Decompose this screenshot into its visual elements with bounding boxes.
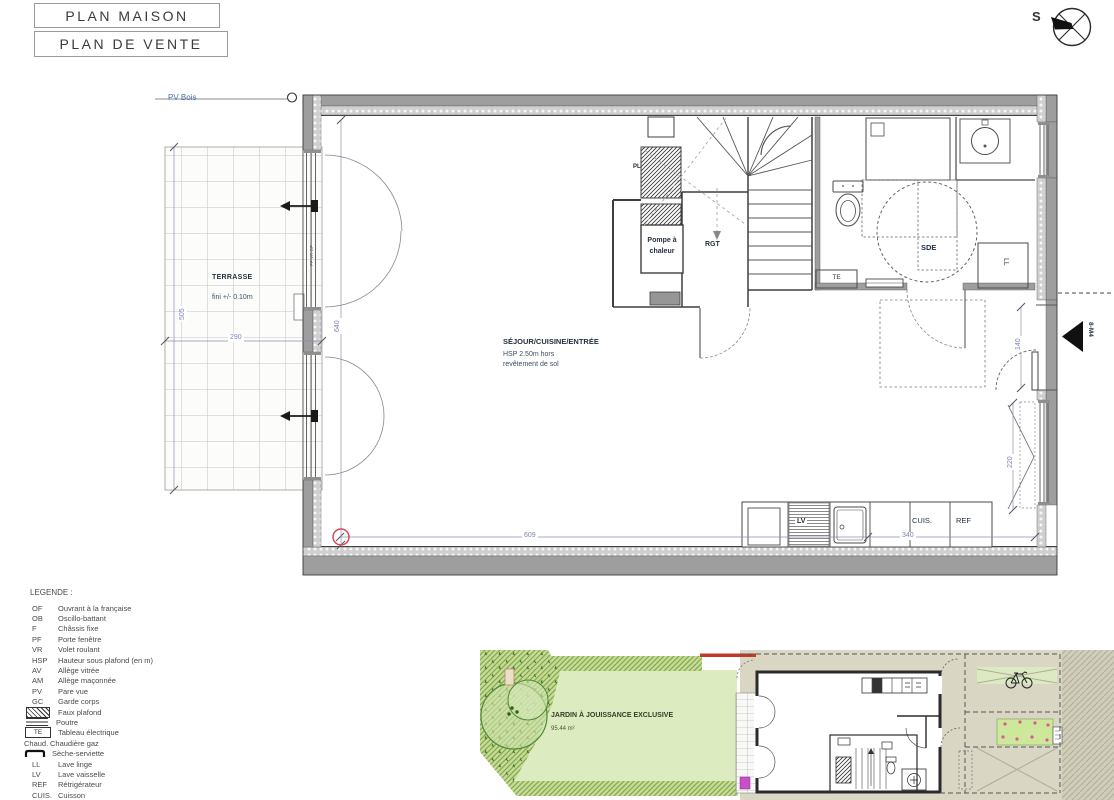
house-footprint (754, 659, 960, 792)
sejour-label: SÉJOUR/CUISINE/ENTRÉE (503, 338, 599, 347)
legend-row-poutre: Poutre (30, 717, 240, 727)
dim-terrasse-height: 505 (179, 306, 187, 322)
compass-icon (1051, 9, 1091, 46)
pompe-label-line1: Pompe à (641, 237, 683, 245)
legend-row: CUIS.Cuisson (30, 790, 240, 800)
title-plan-de-vente: PLAN DE VENTE (34, 31, 228, 57)
tree-icon (508, 680, 548, 720)
legend-row: AMAllège maçonnée (30, 676, 240, 686)
lv-label: LV (795, 518, 807, 526)
plan-sheet: PLAN MAISON PLAN DE VENTE S PV Bois TERR… (0, 0, 1114, 800)
terrasse-label: TERRASSE (212, 274, 253, 282)
legend: LEGENDE : OFOuvrant à la française OBOsc… (30, 588, 240, 800)
te-label: TE (816, 274, 857, 281)
ll-label: LL (1001, 258, 1009, 266)
ref-label: REF (956, 517, 971, 526)
legend-title: LEGENDE : (30, 588, 240, 597)
sde-label: SDE (921, 244, 936, 253)
compass-south-label: S (1032, 10, 1041, 25)
legend-row: LLLave linge (30, 759, 240, 769)
marker-8m4-label: 8-M4 (1087, 322, 1094, 337)
kitchen-counter (742, 502, 992, 547)
dim-right-door: 140 (1015, 336, 1023, 352)
legend-row-seche-serviette: Sèche-serviette (30, 748, 240, 758)
terrasse-tiles (165, 147, 322, 490)
pompe-label-line2: chaleur (641, 248, 683, 256)
magenta-marker (740, 777, 750, 789)
legend-row: AVAllège vitrée (30, 665, 240, 675)
bathroom-sde (815, 117, 1035, 348)
towel-rail-icon (24, 748, 46, 760)
terrasse-note: fini +/- 0.10m (212, 294, 253, 302)
legend-row: FChâssis fixe (30, 624, 240, 634)
legend-row: OFOuvrant à la française (30, 603, 240, 613)
red-line (700, 654, 756, 658)
title-plan-maison: PLAN MAISON (34, 3, 220, 28)
legend-row: OBOscillo-battant (30, 613, 240, 623)
te-box-icon: TE (25, 727, 51, 738)
jardin-area-label: 95.44 m² (551, 726, 575, 733)
pv-bois-label: PV Bois (168, 93, 196, 102)
legend-row: REFRétrigérateur (30, 780, 240, 790)
sejour-note2: revêtement de sol (503, 361, 559, 369)
site-plan (480, 650, 1114, 800)
jardin-label: JARDIN À JOUISSANCE EXCLUSIVE (551, 712, 673, 720)
window-annotation: PF VR OF (309, 245, 314, 266)
legend-row-faux-plafond: Faux plafond (30, 707, 240, 717)
pl-label: PL (633, 164, 641, 171)
sejour-note1: HSP 2.50m hors (503, 351, 554, 359)
legend-row: HSPHauteur sous plafond (en m) (30, 655, 240, 665)
dim-left-height: 640 (334, 318, 342, 334)
legend-row: PVPare vue (30, 686, 240, 696)
dim-bottom-right: 340 (900, 532, 916, 540)
legend-row-te: TETableau électrique (30, 728, 240, 738)
legend-row: PFPorte fenêtre (30, 634, 240, 644)
legend-row: LVLave vaisselle (30, 769, 240, 779)
legend-row: Chaud.Chaudière gaz (30, 738, 240, 748)
dim-terrasse-width: 290 (228, 334, 244, 342)
legend-row: VRVolet roulant (30, 645, 240, 655)
dim-right-window: 220 (1007, 454, 1015, 470)
dim-bottom-left: 609 (522, 532, 538, 540)
legend-row: GCGarde corps (30, 697, 240, 707)
cuis-label: CUIS. (912, 517, 932, 526)
rgt-label: RGT (705, 241, 720, 249)
beam-swatch-icon (26, 718, 48, 726)
hatch-swatch-icon (26, 707, 50, 718)
